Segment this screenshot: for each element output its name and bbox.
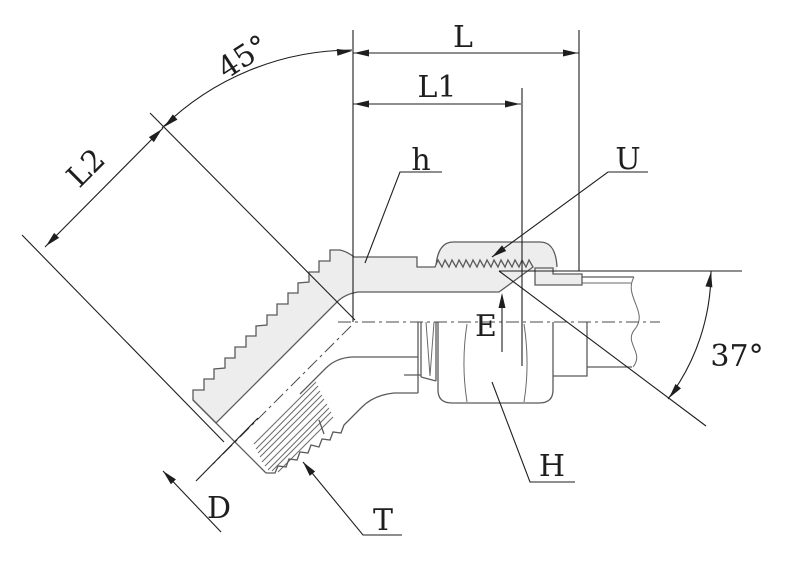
elbow-nose <box>300 322 421 434</box>
label-U: U <box>615 142 640 177</box>
sleeve-block <box>553 322 587 376</box>
label-h: h <box>411 143 430 178</box>
fitting-body <box>193 242 639 473</box>
label-D: D <box>207 491 231 526</box>
label-H: H <box>539 449 565 484</box>
dimension-D: D <box>160 418 258 532</box>
label-E: E <box>475 309 497 344</box>
label-L1: L1 <box>417 70 456 105</box>
fitting-dimension-drawing: 45° L L1 L2 h <box>0 0 810 567</box>
label-T: T <box>373 503 393 538</box>
label-flare-angle: 37° <box>710 339 763 374</box>
split-ring <box>421 322 436 381</box>
dimension-T: T <box>300 460 402 538</box>
label-bend-angle: 45° <box>211 28 275 86</box>
label-L: L <box>453 20 473 55</box>
drawing-canvas: 45° L L1 L2 h <box>0 0 810 567</box>
dimension-h: h <box>365 143 442 263</box>
dimension-H: H <box>492 382 575 484</box>
